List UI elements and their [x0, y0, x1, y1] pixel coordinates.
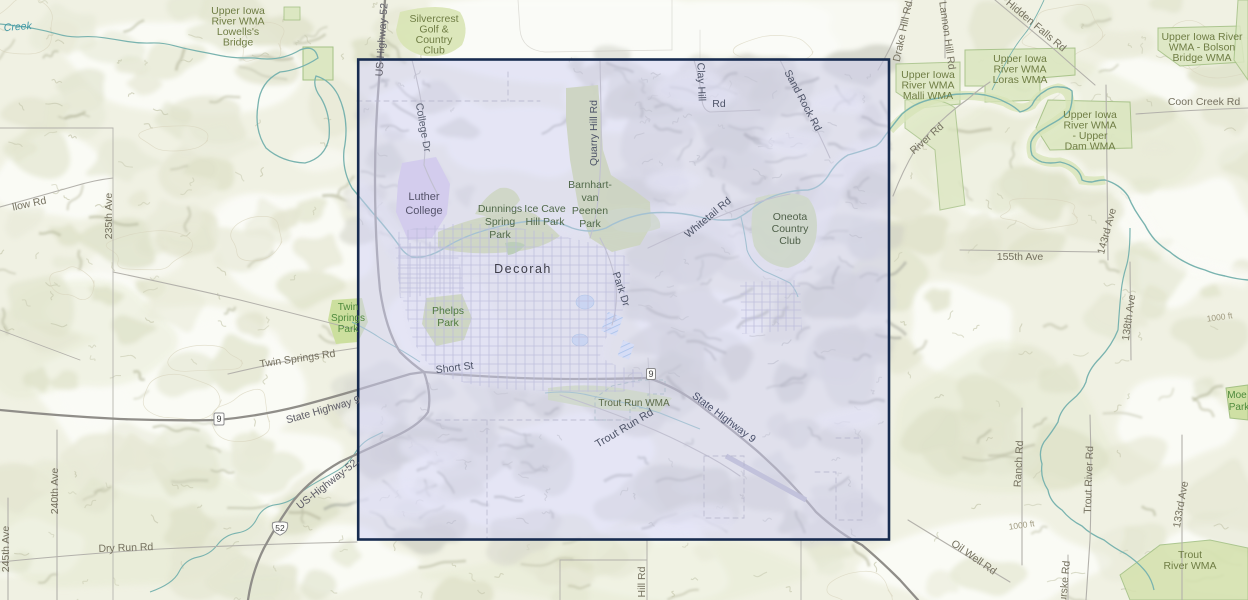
svg-text:Hill Rd: Hill Rd	[636, 566, 648, 597]
svg-text:Park: Park	[1229, 402, 1248, 413]
svg-text:Park: Park	[338, 324, 360, 335]
svg-text:9: 9	[216, 414, 221, 424]
svg-text:Oneota: Oneota	[773, 211, 808, 223]
svg-text:Trout River Rd: Trout River Rd	[1082, 446, 1096, 514]
svg-text:Ranch Rd: Ranch Rd	[1012, 440, 1026, 487]
svg-text:52: 52	[275, 523, 285, 533]
svg-text:Luther: Luther	[408, 191, 440, 203]
svg-text:Moe: Moe	[1227, 390, 1247, 401]
svg-text:Bridge: Bridge	[223, 37, 254, 49]
svg-text:Club: Club	[423, 45, 445, 57]
svg-text:Quarry Hill Rd: Quarry Hill Rd	[588, 100, 600, 166]
svg-text:Trout Run WMA: Trout Run WMA	[598, 398, 670, 409]
svg-text:Decorah: Decorah	[494, 262, 552, 276]
svg-text:Park: Park	[437, 317, 459, 329]
svg-text:Coon Creek Rd: Coon Creek Rd	[1168, 96, 1241, 108]
svg-text:Spring: Spring	[485, 216, 516, 228]
svg-text:Malli WMA: Malli WMA	[903, 90, 953, 102]
svg-text:Bridge WMA: Bridge WMA	[1173, 52, 1232, 64]
svg-text:9: 9	[648, 369, 653, 379]
svg-text:Park: Park	[579, 218, 601, 230]
svg-text:Park: Park	[489, 229, 511, 241]
svg-text:240th Ave: 240th Ave	[49, 468, 61, 515]
svg-text:Ice Cave: Ice Cave	[524, 203, 566, 215]
svg-text:Twin: Twin	[338, 302, 359, 313]
svg-text:Springs: Springs	[331, 313, 365, 324]
svg-text:Dam WMA: Dam WMA	[1065, 141, 1116, 153]
svg-text:Rd: Rd	[712, 98, 726, 110]
svg-text:Creek: Creek	[3, 20, 33, 34]
svg-text:Club: Club	[779, 235, 801, 247]
svg-text:Barnhart-: Barnhart-	[568, 179, 612, 191]
svg-text:Hill Park: Hill Park	[525, 216, 565, 228]
svg-text:155th Ave: 155th Ave	[997, 251, 1044, 263]
svg-text:Dry Run Rd: Dry Run Rd	[98, 541, 153, 555]
svg-text:College: College	[405, 205, 442, 217]
svg-text:van: van	[582, 192, 599, 204]
svg-text:River WMA: River WMA	[1163, 560, 1216, 572]
svg-text:245th Ave: 245th Ave	[0, 526, 12, 573]
svg-text:Peenen: Peenen	[572, 205, 608, 217]
svg-text:Loras WMA: Loras WMA	[993, 74, 1048, 86]
svg-text:Phelps: Phelps	[432, 305, 464, 317]
svg-text:Dunnings: Dunnings	[478, 203, 522, 215]
svg-text:Clay Hill: Clay Hill	[694, 62, 707, 101]
svg-text:Country: Country	[772, 223, 810, 235]
svg-text:235th Ave: 235th Ave	[103, 193, 115, 240]
